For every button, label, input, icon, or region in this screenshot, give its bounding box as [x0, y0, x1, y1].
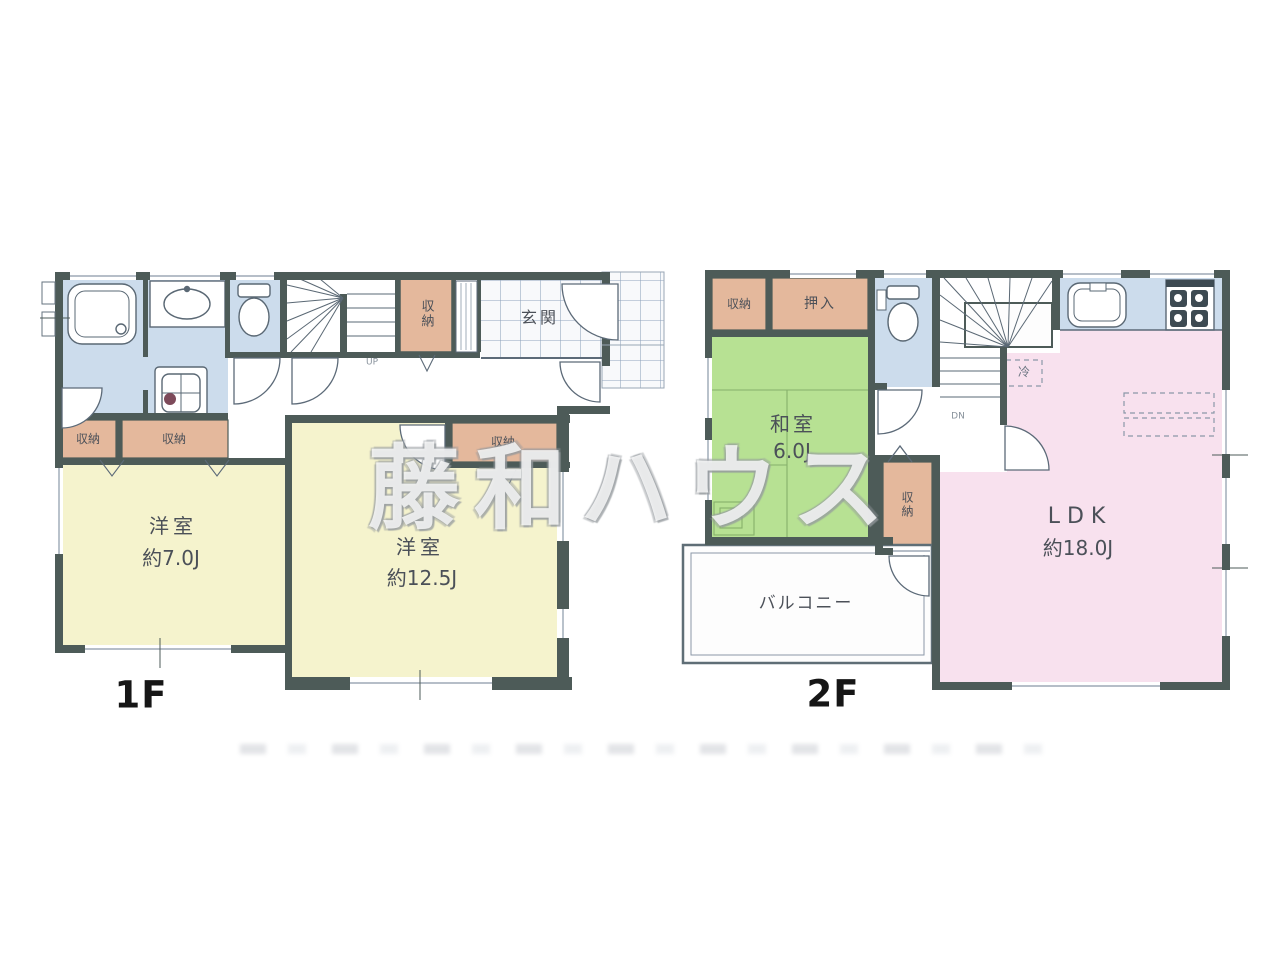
- stairs-1f: [287, 279, 395, 352]
- toilet-tank-1f-icon: [238, 284, 270, 297]
- label-up-mark: UP: [366, 359, 378, 368]
- label-storage-a: 収納: [76, 433, 100, 445]
- label-genkan: 玄関: [521, 310, 559, 326]
- label-storage-stairs-1f: 収納: [420, 299, 433, 329]
- label-floor1: 1F: [114, 677, 167, 714]
- toilet-tank-2f-icon: [887, 286, 919, 299]
- label-storage-side-2f: 収納: [901, 491, 913, 519]
- label-room2-size: 約12.5J: [387, 568, 457, 588]
- scan-artifact-strip: [240, 744, 1045, 754]
- label-balcony: バルコニー: [759, 596, 854, 613]
- label-dn-mark: DN: [951, 413, 965, 422]
- label-washitsu-name: 和室: [770, 414, 816, 434]
- floorplan-lineart: [0, 0, 1280, 960]
- label-room1-size: 約7.0J: [142, 548, 200, 568]
- label-room1-name: 洋室: [149, 516, 197, 536]
- floorplan-page: 収納 玄関 収納 収納 収納 洋室 約7.0J 洋室 約12.5J UP 1F …: [0, 0, 1280, 960]
- room-washitsu: [712, 337, 868, 537]
- label-fridge: 冷: [1018, 366, 1030, 378]
- label-ldk-name: LDK: [1048, 506, 1113, 528]
- label-storage-top-2f: 収納: [727, 298, 751, 310]
- shoe-cabinet: [456, 281, 477, 352]
- label-storage-b: 収納: [162, 433, 186, 445]
- toilet-bowl-1f-icon: [239, 298, 269, 336]
- toilet-bowl-2f-icon: [888, 303, 918, 341]
- label-washitsu-size: 6.0J: [773, 441, 811, 461]
- label-ldk-size: 約18.0J: [1043, 538, 1113, 558]
- label-floor2: 2F: [806, 676, 859, 713]
- floor1-rooms: [62, 272, 664, 677]
- label-storage-room2: 収納: [491, 436, 515, 448]
- label-oshiire: 押入: [804, 297, 836, 311]
- label-room2-name: 洋室: [396, 537, 444, 557]
